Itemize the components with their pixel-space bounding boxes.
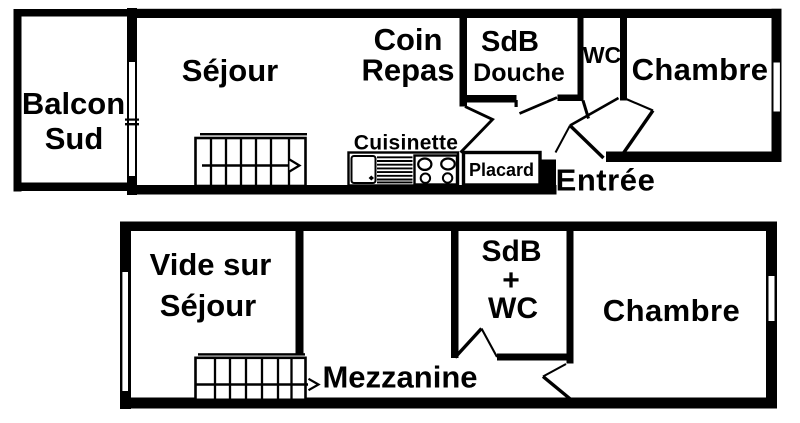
svg-text:WC: WC xyxy=(583,42,621,68)
svg-text:Cuisinette: Cuisinette xyxy=(354,132,459,155)
svg-text:Repas: Repas xyxy=(361,53,454,88)
svg-text:WC: WC xyxy=(488,292,538,325)
svg-text:Séjour: Séjour xyxy=(182,53,278,88)
svg-text:Chambre: Chambre xyxy=(603,293,741,328)
svg-text:Sud: Sud xyxy=(45,121,104,156)
svg-text:Séjour: Séjour xyxy=(160,288,256,323)
svg-text:Entrée: Entrée xyxy=(556,163,656,198)
svg-text:Vide sur: Vide sur xyxy=(150,247,272,282)
svg-text:Chambre: Chambre xyxy=(632,52,769,87)
svg-text:SdB: SdB xyxy=(481,26,539,58)
svg-text:Placard: Placard xyxy=(469,160,534,180)
svg-text:Douche: Douche xyxy=(473,59,565,87)
svg-text:Mezzanine: Mezzanine xyxy=(322,360,477,395)
svg-text:Balcon: Balcon xyxy=(22,86,125,121)
